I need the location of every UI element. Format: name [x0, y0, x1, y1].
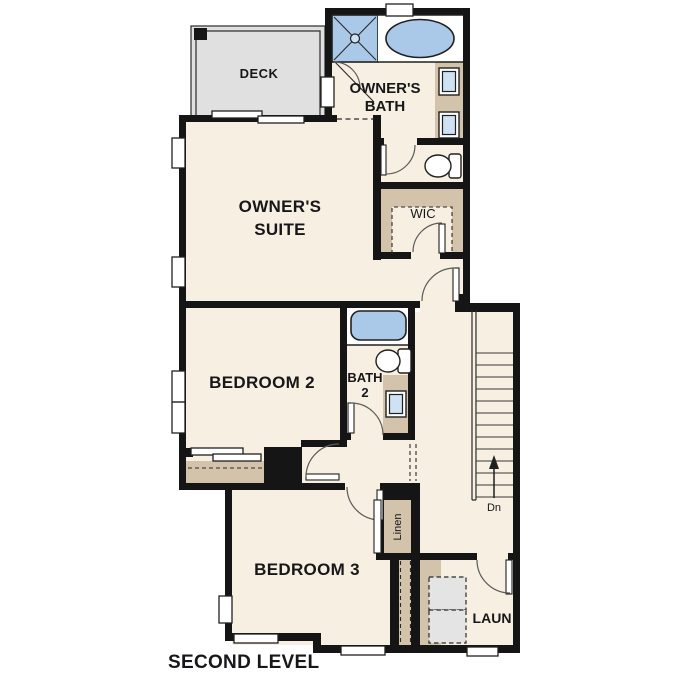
bath2-label-line2: 2 [361, 385, 368, 400]
slider-panel [212, 111, 262, 118]
wall-segment [460, 303, 520, 312]
laundry-label: LAUN [473, 610, 512, 626]
toilet-bowl [425, 155, 451, 177]
bedroom2-label: BEDROOM 2 [209, 373, 315, 392]
page-title: SECOND LEVEL [168, 652, 319, 673]
bath2-tub [347, 308, 408, 345]
wall-segment [179, 301, 420, 308]
owners-suite-label-line2: SUITE [254, 220, 306, 239]
bypass-panel [213, 454, 261, 461]
sink-basin [443, 72, 456, 92]
toilet-door-gap-floor [384, 136, 417, 145]
window [467, 647, 498, 656]
hall-door-gap-floor [420, 299, 455, 312]
wall-segment [408, 308, 415, 440]
bedroom2-closet-shelf [186, 461, 264, 483]
deck-post [194, 28, 207, 40]
slider-panel [258, 116, 304, 123]
window [172, 257, 185, 287]
bath2-sink [386, 391, 406, 417]
wall-segment [340, 433, 351, 440]
window [386, 4, 413, 16]
wall-segment [373, 182, 470, 189]
shower-drain [351, 34, 360, 43]
wall-segment [513, 303, 520, 653]
wall-segment [417, 138, 470, 145]
bath2-door-gap-floor [351, 430, 383, 440]
stair-hall-floor [415, 312, 513, 553]
shower [332, 15, 378, 62]
window [321, 77, 334, 107]
linen-door [374, 500, 381, 553]
center-hall-floor [347, 440, 413, 483]
door-leaf [306, 474, 339, 480]
door-leaf [381, 145, 386, 175]
wall-segment [390, 553, 399, 645]
laundry-door-gap-floor [477, 551, 508, 560]
wall-segment [373, 145, 381, 260]
window [234, 634, 278, 643]
door-leaf [439, 224, 445, 253]
suite-opening-floor [373, 259, 381, 301]
owners-bath-label-line2: BATH [365, 98, 406, 115]
washer [429, 577, 466, 610]
owners-toilet [425, 154, 461, 178]
floor-plan-page: Dn DECK OWNER'S BATH OWNER'S SUITE WIC B… [0, 0, 687, 687]
sink-basin [443, 116, 456, 135]
tub-basin [351, 311, 406, 340]
wall-segment [340, 308, 347, 447]
owners-tub [378, 15, 463, 62]
owners-suite-label-line1: OWNER'S [239, 197, 322, 216]
wall-segment [463, 8, 470, 310]
wall-segment [383, 433, 415, 440]
bedroom3-door-gap-floor [345, 481, 380, 490]
toilet-bowl [376, 350, 400, 372]
wall-segment [264, 447, 302, 483]
door-panel [374, 500, 381, 553]
window [219, 596, 232, 623]
door-leaf [506, 560, 512, 594]
linen-label: Linen [392, 514, 404, 541]
wic-label: WIC [410, 206, 435, 221]
wall-segment [508, 553, 513, 560]
wall-segment [225, 483, 345, 490]
wall-segment [380, 483, 413, 500]
bath2-label-line1: BATH [347, 370, 382, 385]
deck-label: DECK [240, 66, 279, 81]
bedroom3-label: BEDROOM 3 [254, 560, 360, 579]
floor-plan: Dn DECK OWNER'S BATH OWNER'S SUITE WIC B… [0, 0, 687, 687]
wall-segment [301, 440, 347, 447]
door-leaf [453, 268, 459, 301]
owners-bath-label-line1: OWNER'S [349, 80, 420, 97]
window [341, 646, 385, 655]
washer-dryer [429, 577, 466, 643]
tub-basin [386, 20, 454, 58]
dryer [429, 610, 466, 643]
sink-basin [390, 395, 403, 414]
stairs-down-label: Dn [487, 502, 501, 514]
wall-segment [373, 138, 384, 145]
window [172, 138, 185, 168]
wall-segment [411, 483, 420, 645]
door-leaf [348, 403, 354, 433]
